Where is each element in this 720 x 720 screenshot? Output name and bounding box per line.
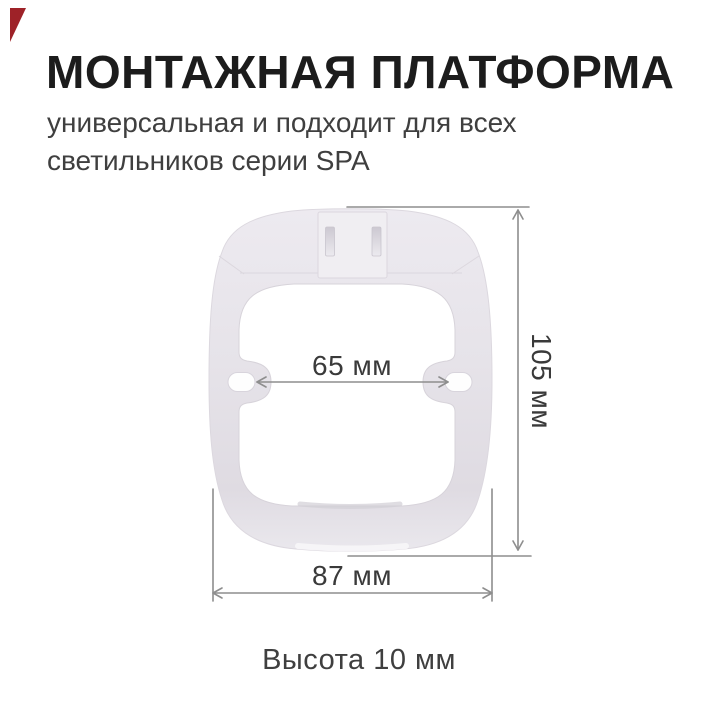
- top-tab-slot-left: [326, 227, 335, 256]
- dimension-label-outer-width: 87 мм: [312, 562, 392, 590]
- dimension-label-height: 105 мм: [527, 333, 555, 429]
- mounting-slot-left: [228, 373, 255, 392]
- mounting-slot-right: [445, 373, 472, 392]
- height-note: Высота 10 мм: [262, 646, 456, 675]
- dimension-label-inner-width: 65 мм: [312, 352, 392, 380]
- top-tab-slot-right: [372, 227, 381, 256]
- platform-inner-hole: [239, 284, 455, 506]
- infographic-page: МОНТАЖНАЯ ПЛАТФОРМА универсальная и подх…: [0, 0, 720, 720]
- bottom-highlight: [298, 546, 406, 549]
- inner-bottom-shadow: [300, 504, 400, 507]
